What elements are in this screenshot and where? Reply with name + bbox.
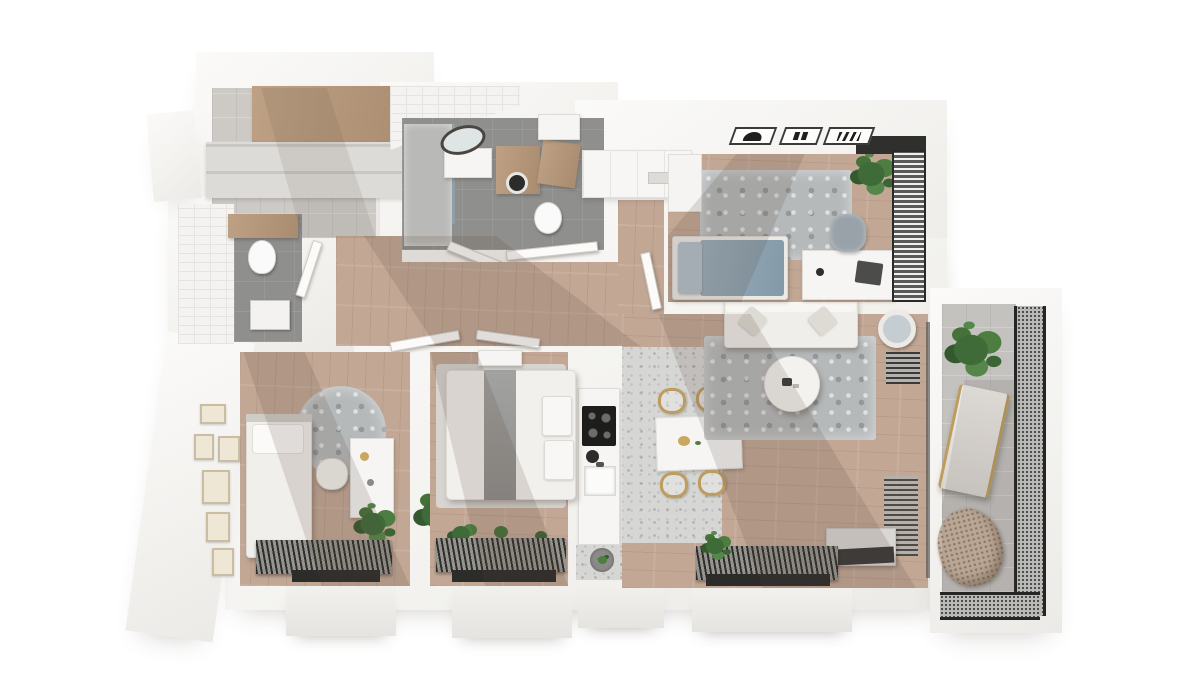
dining-chair-3 <box>660 472 688 498</box>
kids-bed-pillow <box>252 424 304 454</box>
window-sill-living <box>692 588 852 632</box>
bedroom-desk-lamp <box>816 268 824 276</box>
coffee-table-decor <box>782 378 792 386</box>
window-sill-master <box>452 584 572 638</box>
dining-chair-4 <box>698 470 726 496</box>
wc-toilet <box>248 240 276 274</box>
kids-window-radiator <box>256 540 392 574</box>
master-pillow-1 <box>542 396 572 436</box>
kitchen-pot-plant-icon <box>598 556 607 564</box>
living-window-frame <box>706 574 830 586</box>
bathroom-toilet <box>534 202 562 234</box>
master-window-frame <box>452 570 556 582</box>
window-sill-kids <box>286 586 396 636</box>
bedroom-plant <box>858 162 885 186</box>
kids-bed-headboard <box>246 414 312 422</box>
picture-frame-2 <box>194 434 214 460</box>
wc-washbasin <box>250 300 290 330</box>
window-sill-kitchen <box>578 582 664 628</box>
kids-window-frame <box>292 570 380 582</box>
balcony-railing-right <box>1014 306 1046 616</box>
bedroom-closet <box>668 154 702 212</box>
wc-tiled-wall <box>178 204 234 344</box>
kids-desk <box>350 438 394 518</box>
picture-frame-6 <box>212 548 234 576</box>
washing-machine-door <box>506 172 528 194</box>
balcony-plant <box>954 335 988 365</box>
slab-top-left-stub <box>146 110 201 202</box>
picture-frame-5 <box>206 512 230 542</box>
master-console <box>478 350 522 366</box>
master-window-radiator <box>436 538 566 572</box>
radiator-living-top <box>886 352 920 384</box>
bathroom-bench <box>537 140 581 189</box>
kids-plant <box>360 513 385 535</box>
coffee-table <box>764 356 820 412</box>
kitchen-faucet <box>596 462 604 467</box>
bedroom-laptop <box>855 260 884 285</box>
kitchen-sink <box>584 466 616 496</box>
bedroom-window-blinds <box>892 150 926 302</box>
round-mirror <box>878 310 916 348</box>
entry-cabinet-fronts <box>206 142 424 198</box>
picture-frame-1 <box>200 404 226 424</box>
tv-panel <box>836 546 895 565</box>
induction-cooktop <box>582 406 616 446</box>
dining-chair-1 <box>658 388 686 414</box>
picture-frame-3 <box>218 436 240 462</box>
picture-frame-4 <box>202 470 230 504</box>
bedroom-pillow <box>678 242 702 294</box>
wc-counter <box>228 214 298 238</box>
kids-desk-decor <box>360 452 369 461</box>
master-bed-runner <box>484 370 516 500</box>
living-plant <box>706 538 724 554</box>
bedroom-desk-chair <box>830 214 866 252</box>
dining-table-decor <box>678 436 690 446</box>
floor-plan-render <box>0 0 1200 675</box>
bathroom-niche <box>538 114 580 140</box>
bedroom-duvet <box>700 240 784 296</box>
vent-symbol-glyph <box>837 132 862 141</box>
master-pillow-2 <box>544 440 574 480</box>
switch-symbol-icon <box>779 127 824 145</box>
balcony-railing-bottom <box>940 592 1040 620</box>
balcony-door-frame <box>926 322 930 578</box>
kids-chair <box>316 458 348 490</box>
